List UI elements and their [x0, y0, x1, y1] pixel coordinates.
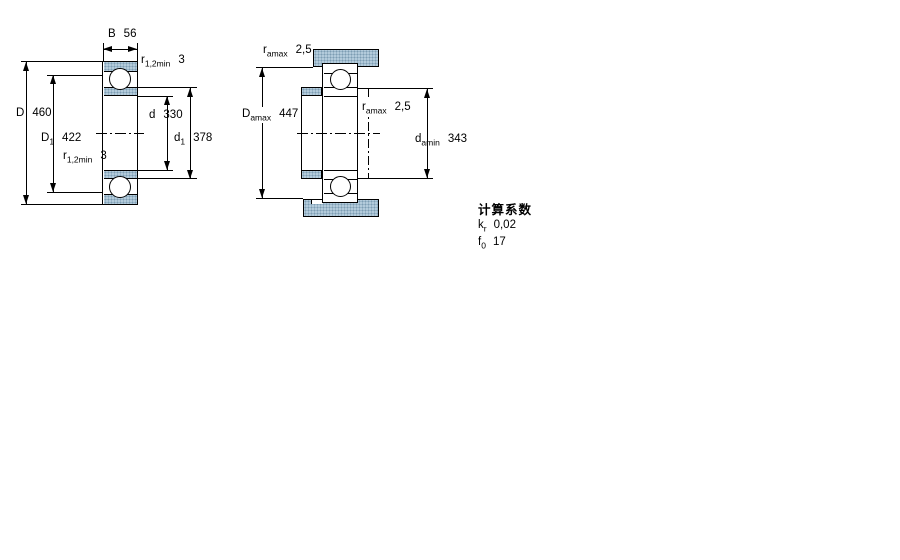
ext-line-da-bottom	[358, 178, 433, 179]
ball-bottom	[330, 176, 351, 197]
arrowhead	[259, 68, 265, 77]
arrowhead	[424, 89, 430, 98]
dim-label-ra-top: ramax2,5	[263, 44, 312, 58]
arrowhead	[424, 169, 430, 178]
ext-line-Da-top	[256, 67, 313, 68]
factors-title: 计算系数	[478, 199, 532, 218]
dim-label-da: damin343	[415, 133, 467, 147]
ext-line-da-top	[358, 88, 433, 89]
factor-f0: f017	[478, 236, 506, 250]
dim-label-Da: Damax447	[239, 107, 301, 123]
ball-top	[330, 69, 351, 90]
ring-boundary	[324, 170, 357, 171]
shaft-shoulder-top	[301, 87, 322, 96]
dim-label-ra-mid: ramax2,5	[359, 100, 414, 116]
arrowhead	[259, 189, 265, 198]
shaft-shoulder-bottom	[301, 170, 322, 179]
ring-boundary	[324, 96, 357, 97]
bearing-drawing-canvas: B56 r1,2min3 D460 D1422 r1,2min3	[0, 0, 900, 560]
right-figure: ramax2,5 Damax447 ramax2,5 damin343	[0, 0, 470, 240]
factor-kr: kr0,02	[478, 219, 516, 233]
dim-line-Da	[262, 68, 263, 199]
